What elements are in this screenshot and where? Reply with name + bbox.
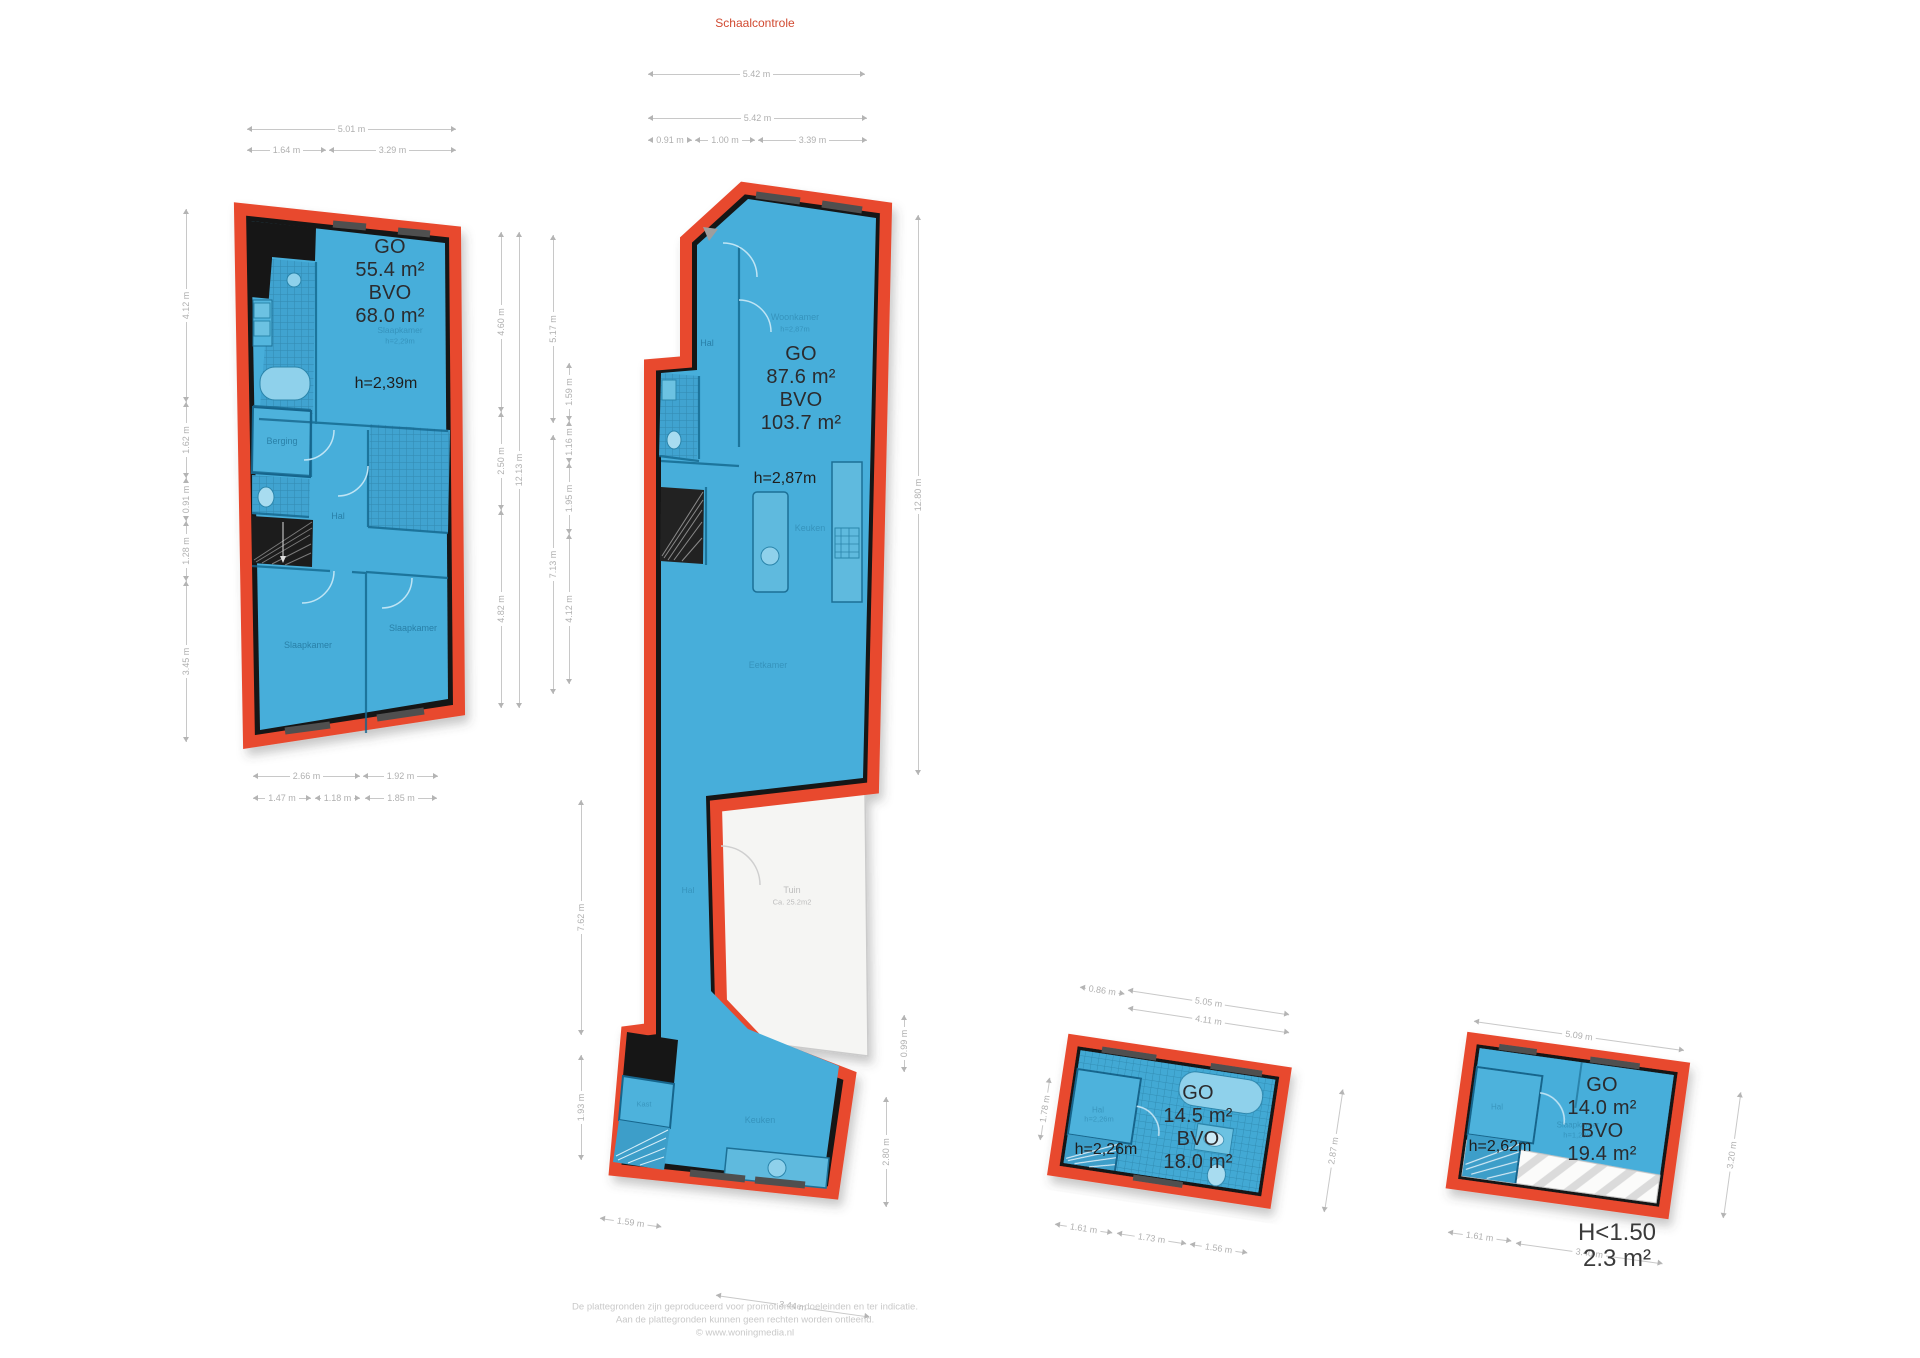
dim-p2-ll-1: 1.93 m <box>576 1055 586 1160</box>
plan2-room-woonkamer-height: h=2,87m <box>780 325 809 334</box>
sink-icon <box>761 547 779 565</box>
go-value: 14.5 m² <box>1163 1105 1232 1128</box>
go-value: 87.6 m² <box>761 366 842 389</box>
go-label: GO <box>355 236 424 259</box>
plan2-room-tuin-area: Ca. 25.2m2 <box>773 898 812 907</box>
dim-p1-right-2: 4.82 m <box>496 510 506 708</box>
dim-p1-top-2: 3.29 m <box>329 145 456 155</box>
go-value: 14.0 m² <box>1567 1097 1636 1120</box>
sink-icon <box>287 273 301 287</box>
plan2-bottom-void <box>623 1032 678 1084</box>
dim-p1-right-3: 12.13 m <box>514 232 524 708</box>
plan4-room-slaapkamer: Slaapkamer <box>1557 1121 1600 1130</box>
bvo-label: BVO <box>1163 1128 1232 1151</box>
plan2-wc <box>659 373 699 459</box>
plan1-room-berging: Berging <box>266 436 297 446</box>
plan1-room-bedroom3: Slaapkamer <box>377 325 422 335</box>
plan4-height-label: h=2,62m <box>1469 1138 1532 1156</box>
bvo-label: BVO <box>761 389 842 412</box>
plan1-area-label: GO 55.4 m² BVO 68.0 m² <box>355 236 424 328</box>
dim-p1-bottom-2: 1.47 m <box>253 793 311 803</box>
dim-p1-top-0: 5.01 m <box>247 124 456 134</box>
plan4-room-slaapkamer-height: h=1,29m <box>1563 1131 1592 1140</box>
toilet-icon <box>667 431 681 449</box>
dim-p1-bottom-4: 1.85 m <box>365 793 437 803</box>
washer-icon <box>254 303 270 318</box>
plan2-room-hal2: Hal <box>682 885 695 895</box>
plan2-room-keuken2: Keuken <box>745 1115 776 1125</box>
plan1-closet <box>253 300 272 346</box>
plan2-room-woonkamer: Woonkamer <box>771 312 819 322</box>
dim-p1-left-4: 3.45 m <box>181 581 191 742</box>
dim-p2-top-0: 5.42 m <box>648 113 867 123</box>
plan1-stairs <box>252 516 313 567</box>
dim-p2-right-0: 12.80 m <box>913 215 923 775</box>
plan1-room-bedroom2: Slaapkamer <box>389 623 437 633</box>
plan2-kitchen-island <box>753 492 788 592</box>
plan2-stairs <box>660 487 704 564</box>
dim-p2-top-3: 3.39 m <box>758 135 867 145</box>
bvo-label: BVO <box>355 282 424 305</box>
dim-p1-top-1: 1.64 m <box>247 145 326 155</box>
footer-disclaimer-line1: De plattegronden zijn geproduceerd voor … <box>572 1302 918 1313</box>
plan1-room-bedroom1: Slaapkamer <box>284 640 332 650</box>
plan4-low-zone-label: H<1.50 <box>1578 1219 1656 1247</box>
plan1-room-hal: Hal <box>331 511 345 521</box>
bvo-value: 18.0 m² <box>1163 1151 1232 1174</box>
dim-p1-left-2: 0.91 m <box>181 478 191 521</box>
plan4-low-zone-value: 2.3 m² <box>1583 1245 1651 1273</box>
footer-disclaimer-line2: Aan de plattegronden kunnen geen rechten… <box>616 1315 874 1326</box>
sink-icon <box>662 380 676 400</box>
dim-p1-bottom-3: 1.18 m <box>315 793 360 803</box>
dim-p1-right-1: 2.50 m <box>496 412 506 510</box>
plan4-room-hal: Hal <box>1491 1103 1503 1112</box>
plan2-room-eetkamer: Eetkamer <box>749 660 788 670</box>
bathtub-icon <box>260 367 310 400</box>
plan2-height-label: h=2,87m <box>754 470 817 488</box>
floorplan-page: Schaalcontrole 5.42 m GO 55.4 m² BVO 68.… <box>0 0 1920 1358</box>
dim-p2-left-4: 1.95 m <box>564 463 574 534</box>
go-label: GO <box>1567 1074 1636 1097</box>
dim-p1-left-0: 4.12 m <box>181 209 191 402</box>
scale-dimension: 5.42 m <box>648 69 865 79</box>
dryer-icon <box>254 321 270 336</box>
dim-p2-left-1: 7.13 m <box>548 435 558 694</box>
plan2-bottom-stairs <box>613 1120 670 1170</box>
toilet-icon <box>258 487 274 507</box>
bvo-value: 19.4 m² <box>1567 1143 1636 1166</box>
dim-p2-left-3: 1.16 m <box>564 421 574 463</box>
dim-p1-bottom-0: 2.66 m <box>253 771 360 781</box>
go-value: 55.4 m² <box>355 259 424 282</box>
plan1-bathroom2 <box>368 424 450 533</box>
dim-p2-top-1: 0.91 m <box>648 135 692 145</box>
go-label: GO <box>1163 1082 1232 1105</box>
dim-p2-top-2: 1.00 m <box>695 135 755 145</box>
plan1-room-bedroom3-height: h=2,29m <box>385 337 414 346</box>
dim-p2-left-0: 5.17 m <box>548 235 558 423</box>
page-title: Schaalcontrole <box>715 16 794 30</box>
dim-p2-right-1: 0.99 m <box>899 1015 909 1072</box>
sink-icon <box>768 1159 786 1177</box>
plan2-area-label: GO 87.6 m² BVO 103.7 m² <box>761 343 842 435</box>
dim-p1-right-0: 4.60 m <box>496 232 506 412</box>
dim-p1-bottom-1: 1.92 m <box>363 771 438 781</box>
plan2-room-tuin: Tuin <box>783 885 800 895</box>
plan3-area-label: GO 14.5 m² BVO 18.0 m² <box>1163 1082 1232 1174</box>
plan1-group <box>240 209 459 742</box>
bvo-value: 103.7 m² <box>761 412 842 435</box>
footer-copyright: © www.woningmedia.nl <box>696 1328 794 1339</box>
go-label: GO <box>761 343 842 366</box>
dim-p1-left-1: 1.62 m <box>181 402 191 478</box>
plan2-room-kast: Kast <box>636 1100 651 1109</box>
dim-p2-left-5: 4.12 m <box>564 534 574 684</box>
plan1-height-label: h=2,39m <box>355 375 418 393</box>
dim-p1-left-3: 1.28 m <box>181 521 191 581</box>
plan2-kitchen-counter <box>832 462 862 602</box>
plan3-room-hal: Hal <box>1092 1106 1104 1115</box>
dim-p2-right-2: 2.80 m <box>881 1097 891 1207</box>
dim-p2-left-2: 1.59 m <box>564 363 574 421</box>
plan3-hal-room <box>1068 1069 1141 1144</box>
plan2-room-hal: Hal <box>700 338 714 348</box>
dim-p2-ll-0: 7.62 m <box>576 800 586 1035</box>
plan2-group <box>613 188 886 1193</box>
plan3-room-hal-height: h=2,26m <box>1084 1115 1113 1124</box>
plan4-hal-room <box>1468 1067 1543 1143</box>
plan3-height-label: h=2,26m <box>1075 1141 1138 1159</box>
plan2-room-keuken: Keuken <box>795 523 826 533</box>
plan1-wc <box>252 475 310 518</box>
